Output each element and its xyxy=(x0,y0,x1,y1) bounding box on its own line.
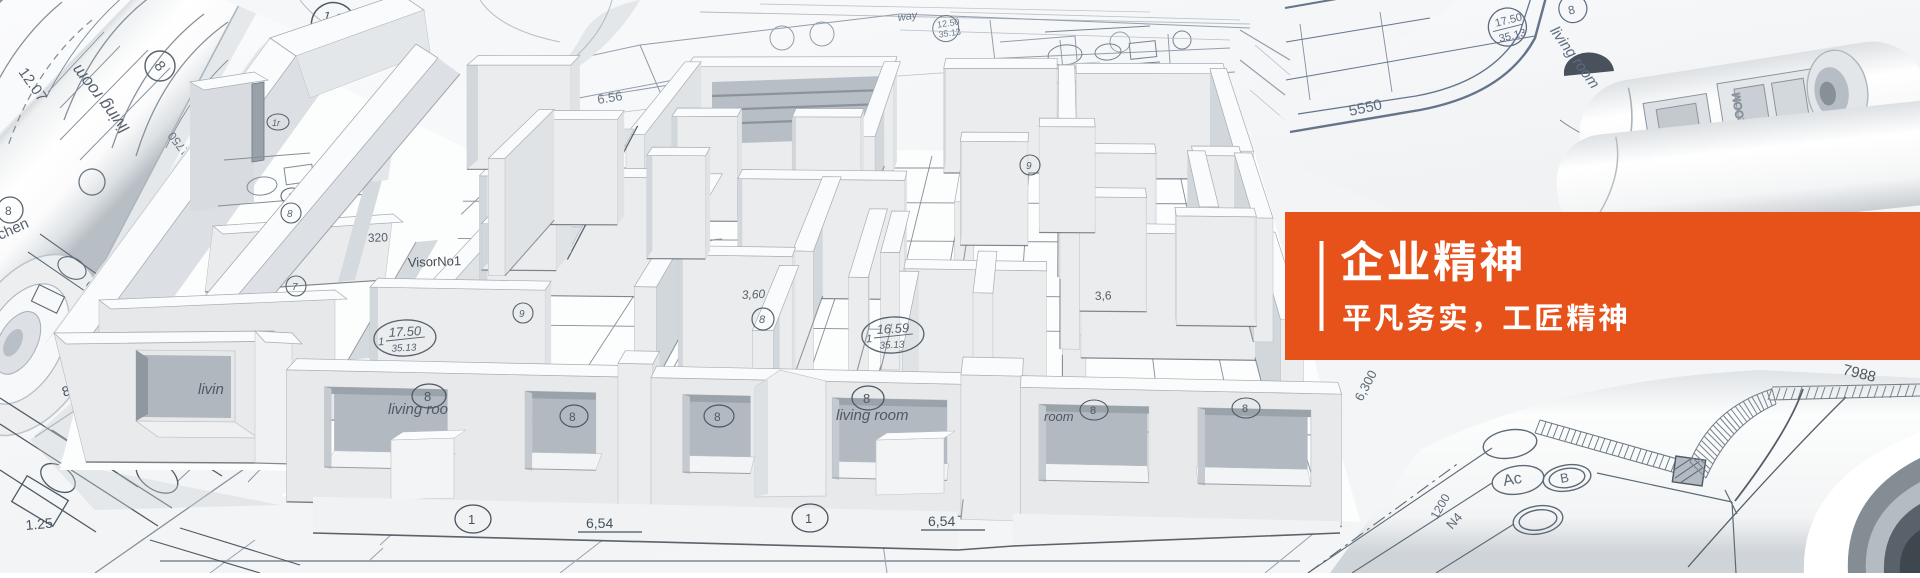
svg-text:1: 1 xyxy=(805,511,812,526)
svg-text:8: 8 xyxy=(569,410,576,424)
svg-text:1r: 1r xyxy=(272,118,281,128)
svg-text:3,60: 3,60 xyxy=(741,287,765,302)
svg-text:8: 8 xyxy=(1090,405,1096,417)
svg-text:room: room xyxy=(1044,409,1074,424)
svg-text:1.25: 1.25 xyxy=(25,515,54,533)
svg-text:320: 320 xyxy=(368,230,389,245)
svg-text:9: 9 xyxy=(1026,161,1032,172)
svg-text:living roo: living roo xyxy=(388,401,448,418)
svg-text:9: 9 xyxy=(519,309,525,320)
svg-text:livin: livin xyxy=(198,381,224,398)
svg-text:7: 7 xyxy=(292,282,298,293)
svg-text:8: 8 xyxy=(1242,403,1248,415)
svg-text:3,6: 3,6 xyxy=(1095,288,1112,303)
svg-text:8: 8 xyxy=(714,410,721,424)
svg-text:8: 8 xyxy=(287,209,293,220)
svg-text:Ac: Ac xyxy=(1502,470,1523,490)
svg-text:VisorNo1: VisorNo1 xyxy=(408,253,462,270)
svg-text:16.59: 16.59 xyxy=(876,320,909,337)
svg-text:8: 8 xyxy=(863,391,870,406)
svg-text:1: 1 xyxy=(468,512,475,527)
svg-text:6,54: 6,54 xyxy=(928,513,955,529)
svg-text:35.13: 35.13 xyxy=(391,342,417,354)
svg-text:1: 1 xyxy=(866,333,873,345)
svg-text:35.13: 35.13 xyxy=(879,339,905,351)
svg-text:8: 8 xyxy=(5,204,12,218)
svg-text:1: 1 xyxy=(378,336,385,348)
svg-text:8: 8 xyxy=(759,314,766,326)
svg-text:6,54: 6,54 xyxy=(586,515,613,531)
svg-text:8: 8 xyxy=(424,389,431,404)
